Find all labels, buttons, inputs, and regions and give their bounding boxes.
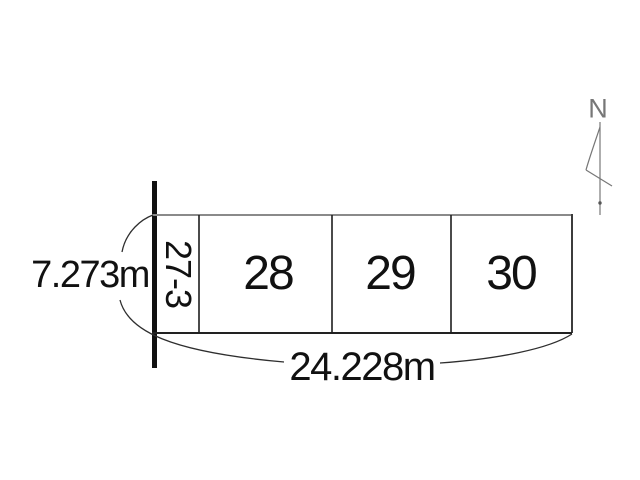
parcel-label-28: 28 <box>243 250 292 298</box>
parcel-label-30: 30 <box>486 250 535 298</box>
dimension-arc-left-lower <box>120 300 284 362</box>
parcel-label-27-3: 27-3 <box>160 240 196 308</box>
parcel-label-29: 29 <box>365 250 414 298</box>
dimension-label-bottom: 24.228m <box>289 347 434 387</box>
north-label: N <box>588 96 608 123</box>
diagram-linework <box>0 0 640 480</box>
dimension-label-left: 7.273m <box>31 256 149 294</box>
dimension-arc-bottom-right <box>440 334 572 363</box>
thick-boundary-line <box>152 181 157 368</box>
north-arrow-dot <box>598 201 601 204</box>
north-arrow-left-stroke <box>586 127 600 170</box>
land-plot-diagram: 27-3 28 29 30 7.273m 24.228m N <box>0 0 640 480</box>
dimension-arc-left-upper <box>122 215 153 252</box>
north-arrow-cross-stroke <box>586 170 612 186</box>
